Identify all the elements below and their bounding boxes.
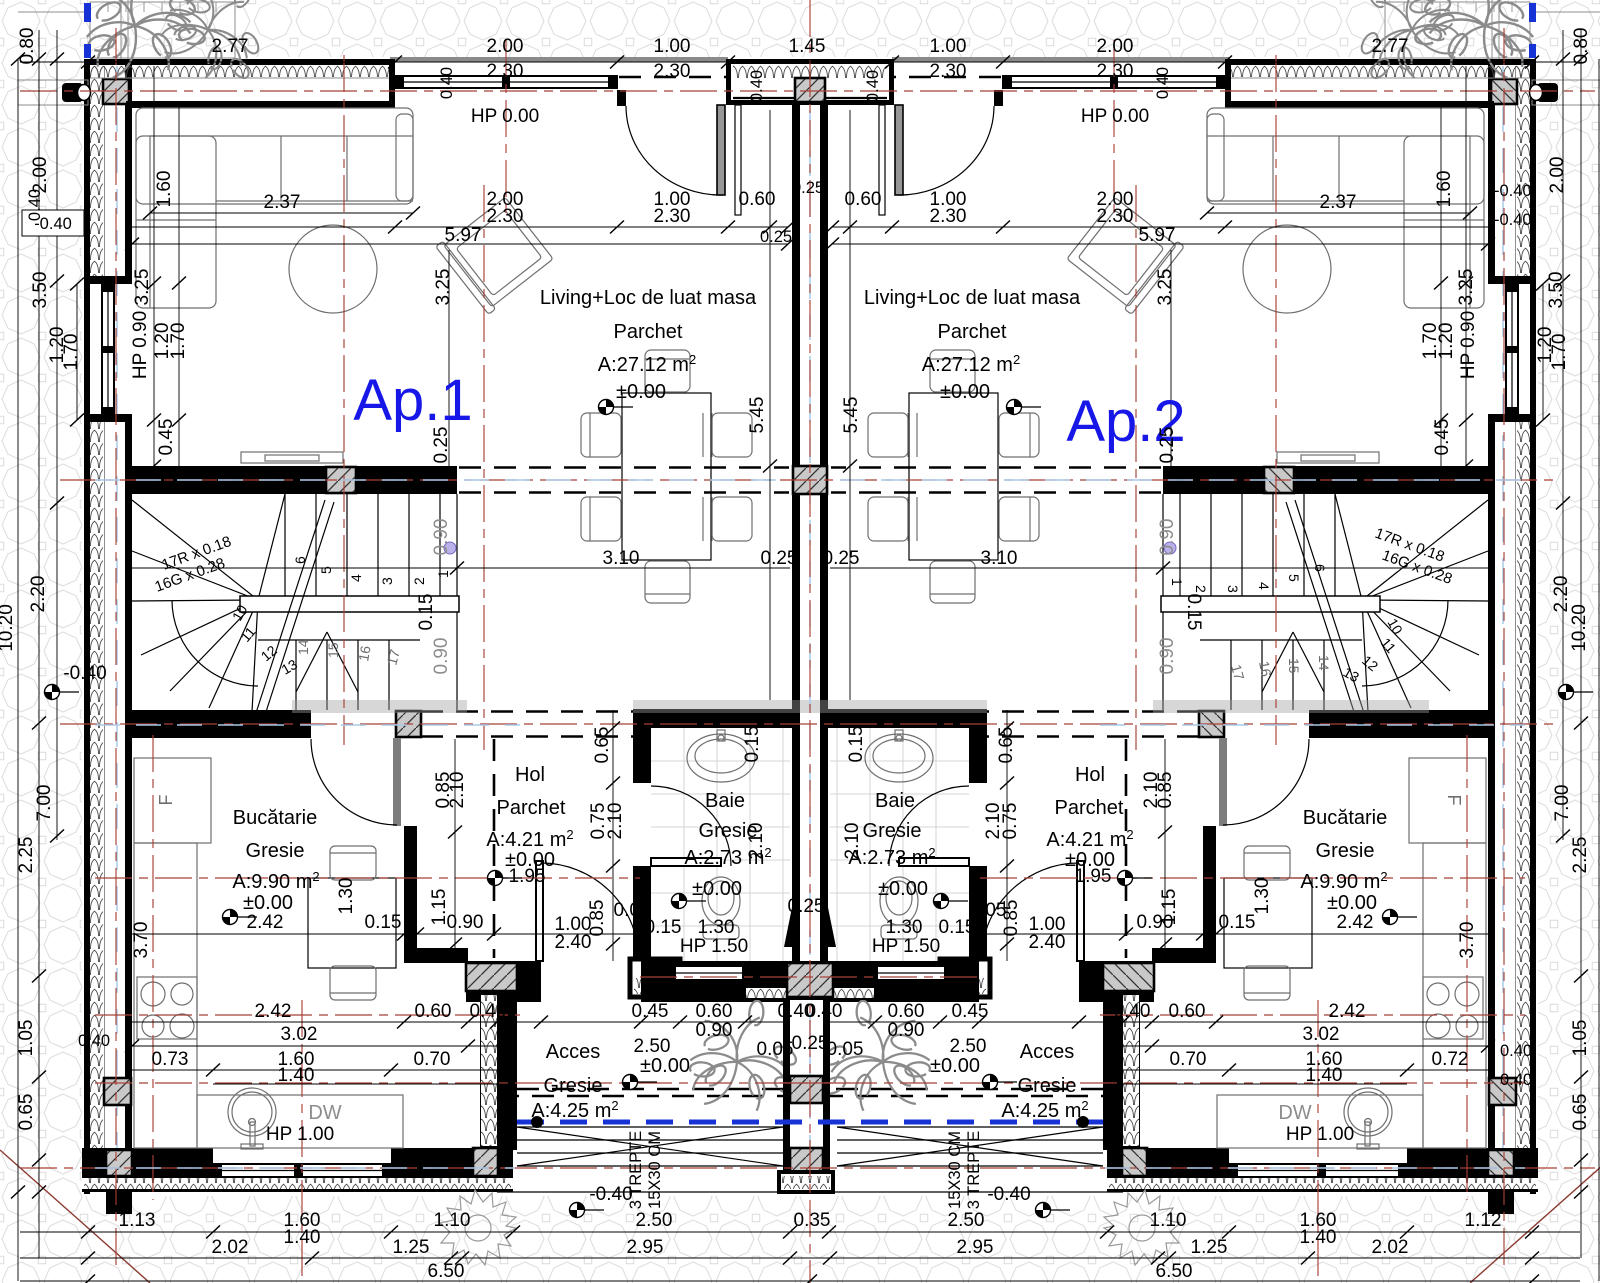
svg-text:0.90: 0.90 xyxy=(888,1020,925,1041)
svg-text:6: 6 xyxy=(292,556,308,564)
svg-text:HP 0.00: HP 0.00 xyxy=(471,106,539,127)
svg-text:±0.00: ±0.00 xyxy=(878,878,928,900)
svg-text:Hol: Hol xyxy=(515,764,545,786)
svg-text:0.90: 0.90 xyxy=(1157,638,1178,675)
svg-text:0.40: 0.40 xyxy=(806,1001,843,1022)
svg-text:Acces: Acces xyxy=(546,1041,600,1063)
svg-text:-0.40: -0.40 xyxy=(1494,211,1532,229)
svg-text:0.25: 0.25 xyxy=(788,896,825,917)
svg-text:Gresie: Gresie xyxy=(246,840,305,862)
svg-text:2.20: 2.20 xyxy=(28,576,49,613)
svg-text:3.50: 3.50 xyxy=(30,272,51,309)
svg-text:2.50: 2.50 xyxy=(950,1036,987,1057)
svg-text:0.60: 0.60 xyxy=(739,189,776,210)
svg-text:1.70: 1.70 xyxy=(61,334,82,371)
svg-text:2.50: 2.50 xyxy=(636,1210,673,1231)
svg-text:6.50: 6.50 xyxy=(1156,1261,1193,1282)
svg-text:-0.40: -0.40 xyxy=(987,1184,1030,1205)
svg-text:A:4.21 m2: A:4.21 m2 xyxy=(486,827,573,851)
svg-text:2.30: 2.30 xyxy=(654,206,691,227)
svg-text:2.42: 2.42 xyxy=(1337,912,1374,933)
svg-text:0.45: 0.45 xyxy=(156,419,177,456)
svg-text:0.40: 0.40 xyxy=(748,70,766,102)
svg-text:1.40: 1.40 xyxy=(1300,1227,1337,1248)
svg-text:1.40: 1.40 xyxy=(278,1065,315,1086)
svg-text:5.97: 5.97 xyxy=(1139,225,1176,246)
svg-text:1.70: 1.70 xyxy=(168,323,189,360)
svg-text:2.00: 2.00 xyxy=(30,157,51,194)
svg-text:6.50: 6.50 xyxy=(428,1261,465,1282)
svg-text:3.02: 3.02 xyxy=(281,1024,318,1045)
svg-text:3.25: 3.25 xyxy=(1155,269,1176,306)
svg-text:5.45: 5.45 xyxy=(841,397,862,434)
svg-text:2.10: 2.10 xyxy=(605,803,626,840)
svg-text:0.72: 0.72 xyxy=(1432,1049,1469,1070)
svg-text:3.02: 3.02 xyxy=(1303,1024,1340,1045)
svg-text:A:9.90 m2: A:9.90 m2 xyxy=(1300,869,1387,893)
svg-text:1.05: 1.05 xyxy=(16,1020,37,1057)
svg-text:0.60: 0.60 xyxy=(888,1001,925,1022)
svg-text:2.10: 2.10 xyxy=(1141,772,1162,809)
svg-text:Ap.1: Ap.1 xyxy=(353,368,472,433)
svg-text:0.40: 0.40 xyxy=(1114,1001,1151,1022)
svg-text:0.60: 0.60 xyxy=(415,1001,452,1022)
svg-text:0.73: 0.73 xyxy=(152,1049,189,1070)
svg-text:3.25: 3.25 xyxy=(1456,269,1477,306)
svg-text:2.42: 2.42 xyxy=(1329,1001,1366,1022)
svg-text:Baie: Baie xyxy=(705,790,745,812)
svg-text:0.40: 0.40 xyxy=(1500,1071,1532,1089)
svg-text:0.90: 0.90 xyxy=(431,519,452,556)
svg-text:0.60: 0.60 xyxy=(696,1001,733,1022)
svg-text:1.10: 1.10 xyxy=(434,1210,471,1231)
svg-text:1.25: 1.25 xyxy=(393,1237,430,1258)
svg-text:2.10: 2.10 xyxy=(746,823,767,860)
svg-text:Acces: Acces xyxy=(1020,1041,1074,1063)
svg-text:0.15: 0.15 xyxy=(1219,912,1256,933)
svg-text:A:4.25 m2: A:4.25 m2 xyxy=(1001,1098,1088,1122)
svg-text:±0.00: ±0.00 xyxy=(692,878,742,900)
svg-text:0.25: 0.25 xyxy=(761,548,798,569)
svg-text:3.10: 3.10 xyxy=(981,548,1018,569)
svg-text:2.30: 2.30 xyxy=(487,61,524,82)
svg-text:1.30: 1.30 xyxy=(698,917,735,938)
svg-text:0.90: 0.90 xyxy=(447,912,484,933)
svg-text:1.15: 1.15 xyxy=(1159,889,1180,926)
svg-text:0.90: 0.90 xyxy=(431,638,452,675)
svg-text:0.25: 0.25 xyxy=(1157,427,1178,464)
svg-text:3.25: 3.25 xyxy=(433,269,454,306)
svg-text:-0.40: -0.40 xyxy=(1494,182,1532,200)
svg-text:0.40: 0.40 xyxy=(1500,1042,1532,1060)
svg-text:0.45: 0.45 xyxy=(952,1001,989,1022)
svg-text:HP 1.00: HP 1.00 xyxy=(266,1124,334,1145)
svg-text:HP 1.50: HP 1.50 xyxy=(680,936,748,957)
svg-text:Parchet: Parchet xyxy=(938,321,1007,343)
svg-text:1.70: 1.70 xyxy=(1420,323,1441,360)
svg-text:0.60: 0.60 xyxy=(1169,1001,1206,1022)
svg-text:0.40: 0.40 xyxy=(438,67,456,99)
svg-text:0.25: 0.25 xyxy=(823,548,860,569)
svg-text:Gresie: Gresie xyxy=(863,820,922,842)
svg-text:1.45: 1.45 xyxy=(789,36,826,57)
svg-text:1.40: 1.40 xyxy=(1306,1065,1343,1086)
svg-text:0.15: 0.15 xyxy=(645,917,682,938)
svg-text:A:27.12 m2: A:27.12 m2 xyxy=(598,352,696,376)
svg-text:1.05: 1.05 xyxy=(1570,1020,1591,1057)
svg-text:4: 4 xyxy=(348,574,364,582)
svg-text:Parchet: Parchet xyxy=(497,797,566,819)
svg-text:F: F xyxy=(1444,795,1464,806)
svg-text:2.10: 2.10 xyxy=(983,803,1004,840)
svg-text:2.40: 2.40 xyxy=(1029,932,1066,953)
svg-text:10.20: 10.20 xyxy=(0,604,17,652)
svg-text:1.70: 1.70 xyxy=(1549,334,1570,371)
svg-text:2.37: 2.37 xyxy=(264,192,301,213)
svg-text:0.05: 0.05 xyxy=(757,1039,794,1060)
svg-text:Living+Loc de luat masa: Living+Loc de luat masa xyxy=(540,287,757,309)
svg-text:0.90: 0.90 xyxy=(1157,519,1178,556)
svg-text:HP 0.90: HP 0.90 xyxy=(1458,311,1479,379)
svg-text:7.00: 7.00 xyxy=(34,785,55,822)
svg-text:1.30: 1.30 xyxy=(886,917,923,938)
svg-text:±0.00: ±0.00 xyxy=(930,1055,980,1077)
svg-text:2.50: 2.50 xyxy=(948,1210,985,1231)
svg-text:2.77: 2.77 xyxy=(212,36,249,57)
svg-text:1.10: 1.10 xyxy=(1150,1210,1187,1231)
svg-text:HP 1.50: HP 1.50 xyxy=(872,936,940,957)
svg-text:6: 6 xyxy=(1312,564,1328,572)
svg-text:A:27.12 m2: A:27.12 m2 xyxy=(922,352,1020,376)
svg-text:0.40: 0.40 xyxy=(1154,67,1172,99)
svg-text:2.42: 2.42 xyxy=(247,912,284,933)
svg-text:2.10: 2.10 xyxy=(842,823,863,860)
svg-text:2.10: 2.10 xyxy=(447,772,468,809)
svg-text:HP 0.90: HP 0.90 xyxy=(130,311,151,379)
svg-text:2.30: 2.30 xyxy=(654,61,691,82)
svg-text:0.15: 0.15 xyxy=(742,726,763,763)
svg-text:0.25: 0.25 xyxy=(792,179,824,197)
svg-text:Bucătarie: Bucătarie xyxy=(1303,807,1388,829)
svg-text:16: 16 xyxy=(1256,660,1274,678)
svg-text:0.45: 0.45 xyxy=(1432,419,1453,456)
svg-text:DW: DW xyxy=(1278,1102,1311,1124)
svg-text:15: 15 xyxy=(325,642,341,658)
svg-text:Parchet: Parchet xyxy=(1055,797,1124,819)
svg-text:3 TREPTE: 3 TREPTE xyxy=(965,1131,983,1210)
svg-text:HP 0.00: HP 0.00 xyxy=(1081,106,1149,127)
svg-text:0.05: 0.05 xyxy=(827,1039,864,1060)
svg-text:14: 14 xyxy=(1316,655,1332,671)
svg-text:0.15: 0.15 xyxy=(939,917,976,938)
svg-text:0.25: 0.25 xyxy=(792,1033,829,1054)
svg-text:0.80: 0.80 xyxy=(1571,28,1592,65)
svg-text:1: 1 xyxy=(1169,578,1185,586)
svg-text:0.15: 0.15 xyxy=(1183,594,1204,631)
svg-text:2.30: 2.30 xyxy=(1097,61,1134,82)
svg-text:2.95: 2.95 xyxy=(627,1237,664,1258)
svg-text:Hol: Hol xyxy=(1075,764,1105,786)
svg-text:2.77: 2.77 xyxy=(1372,36,1409,57)
svg-text:5.45: 5.45 xyxy=(747,397,768,434)
svg-text:DW: DW xyxy=(308,1102,341,1124)
svg-text:A:4.25 m2: A:4.25 m2 xyxy=(531,1098,618,1122)
svg-text:1: 1 xyxy=(435,570,451,578)
svg-text:Gresie: Gresie xyxy=(544,1075,603,1097)
svg-text:3 TREPTE: 3 TREPTE xyxy=(627,1131,645,1210)
svg-text:5: 5 xyxy=(1286,574,1302,582)
svg-text:0.65: 0.65 xyxy=(996,727,1017,764)
svg-text:2.30: 2.30 xyxy=(1097,206,1134,227)
svg-text:2: 2 xyxy=(411,577,427,585)
svg-text:7.00: 7.00 xyxy=(1552,785,1573,822)
svg-text:3.50: 3.50 xyxy=(1546,272,1567,309)
svg-text:2.37: 2.37 xyxy=(1320,192,1357,213)
svg-text:0.15: 0.15 xyxy=(846,726,867,763)
svg-text:2.02: 2.02 xyxy=(1372,1237,1409,1258)
svg-text:2.30: 2.30 xyxy=(930,61,967,82)
svg-text:3.70: 3.70 xyxy=(1457,922,1478,959)
svg-text:2.95: 2.95 xyxy=(957,1237,994,1258)
svg-text:16: 16 xyxy=(355,644,373,662)
svg-text:0.45: 0.45 xyxy=(632,1001,669,1022)
svg-text:HP 1.00: HP 1.00 xyxy=(1286,1124,1354,1145)
svg-text:1.95: 1.95 xyxy=(1075,866,1112,887)
svg-text:0.85: 0.85 xyxy=(587,900,608,937)
svg-text:3.25: 3.25 xyxy=(132,269,153,306)
svg-text:±0.00: ±0.00 xyxy=(616,381,666,403)
svg-text:0.40: 0.40 xyxy=(864,70,882,102)
svg-text:14: 14 xyxy=(295,639,311,655)
svg-text:3: 3 xyxy=(1225,585,1241,593)
svg-text:1.13: 1.13 xyxy=(119,1210,156,1231)
svg-text:0.85: 0.85 xyxy=(1001,900,1022,937)
svg-text:0.65: 0.65 xyxy=(16,1094,37,1131)
svg-text:1.95: 1.95 xyxy=(509,866,546,887)
svg-text:A:9.90 m2: A:9.90 m2 xyxy=(232,869,319,893)
svg-text:4: 4 xyxy=(1256,582,1272,590)
svg-text:2: 2 xyxy=(1193,585,1209,593)
svg-text:1.40: 1.40 xyxy=(284,1227,321,1248)
svg-text:Gresie: Gresie xyxy=(1018,1075,1077,1097)
svg-text:2.00: 2.00 xyxy=(1547,157,1568,194)
svg-text:1.60: 1.60 xyxy=(1434,171,1455,208)
svg-text:2.00: 2.00 xyxy=(1097,36,1134,57)
svg-text:Bucătarie: Bucătarie xyxy=(233,807,318,829)
svg-text:±0.00: ±0.00 xyxy=(640,1055,690,1077)
svg-text:0.40: 0.40 xyxy=(470,1001,507,1022)
svg-text:2.50: 2.50 xyxy=(634,1036,671,1057)
svg-text:3.70: 3.70 xyxy=(131,922,152,959)
svg-text:1.60: 1.60 xyxy=(154,171,175,208)
svg-text:F: F xyxy=(156,795,176,806)
svg-text:0.25: 0.25 xyxy=(760,228,792,246)
svg-text:10.20: 10.20 xyxy=(1569,604,1590,652)
svg-text:2.25: 2.25 xyxy=(1570,837,1591,874)
svg-text:2.30: 2.30 xyxy=(930,206,967,227)
svg-text:2.30: 2.30 xyxy=(487,206,524,227)
svg-text:3: 3 xyxy=(379,577,395,585)
svg-text:0.60: 0.60 xyxy=(845,189,882,210)
svg-text:±0.00: ±0.00 xyxy=(940,381,990,403)
svg-text:0.25: 0.25 xyxy=(431,427,452,464)
svg-text:0.35: 0.35 xyxy=(794,1210,831,1231)
svg-text:3.10: 3.10 xyxy=(603,548,640,569)
svg-text:1.30: 1.30 xyxy=(1252,878,1273,915)
svg-text:±0.00: ±0.00 xyxy=(243,892,293,914)
svg-text:1.30: 1.30 xyxy=(336,878,357,915)
svg-text:5.97: 5.97 xyxy=(445,225,482,246)
svg-text:5: 5 xyxy=(318,566,334,574)
svg-text:0.65: 0.65 xyxy=(592,727,613,764)
svg-text:Living+Loc de luat masa: Living+Loc de luat masa xyxy=(864,287,1081,309)
svg-text:Gresie: Gresie xyxy=(1316,840,1375,862)
svg-text:2.42: 2.42 xyxy=(255,1001,292,1022)
svg-text:A:4.21 m2: A:4.21 m2 xyxy=(1046,827,1133,851)
svg-text:±0.00: ±0.00 xyxy=(1327,892,1377,914)
svg-text:0.15: 0.15 xyxy=(416,594,437,631)
svg-text:Parchet: Parchet xyxy=(614,321,683,343)
svg-text:Baie: Baie xyxy=(875,790,915,812)
svg-text:2.20: 2.20 xyxy=(1551,576,1572,613)
svg-text:0.40: 0.40 xyxy=(26,189,44,221)
svg-text:0.80: 0.80 xyxy=(17,28,38,65)
svg-text:0.70: 0.70 xyxy=(1170,1049,1207,1070)
svg-text:0.70: 0.70 xyxy=(414,1049,451,1070)
svg-text:1.00: 1.00 xyxy=(654,36,691,57)
svg-text:0.90: 0.90 xyxy=(696,1020,733,1041)
svg-text:2.00: 2.00 xyxy=(487,36,524,57)
svg-text:15X30 CM: 15X30 CM xyxy=(646,1131,664,1209)
svg-text:1.15: 1.15 xyxy=(429,889,450,926)
svg-text:15X30 CM: 15X30 CM xyxy=(946,1131,964,1209)
svg-text:2.25: 2.25 xyxy=(16,837,37,874)
svg-text:1.25: 1.25 xyxy=(1191,1237,1228,1258)
svg-text:1.00: 1.00 xyxy=(930,36,967,57)
svg-text:2.40: 2.40 xyxy=(555,932,592,953)
svg-text:-0.40: -0.40 xyxy=(63,663,106,684)
svg-text:0.40: 0.40 xyxy=(78,1032,110,1050)
svg-text:0.15: 0.15 xyxy=(365,912,402,933)
svg-text:0.65: 0.65 xyxy=(1570,1094,1591,1131)
svg-text:1.12: 1.12 xyxy=(1465,1210,1502,1231)
svg-text:2.02: 2.02 xyxy=(212,1237,249,1258)
svg-text:15: 15 xyxy=(1286,658,1302,674)
